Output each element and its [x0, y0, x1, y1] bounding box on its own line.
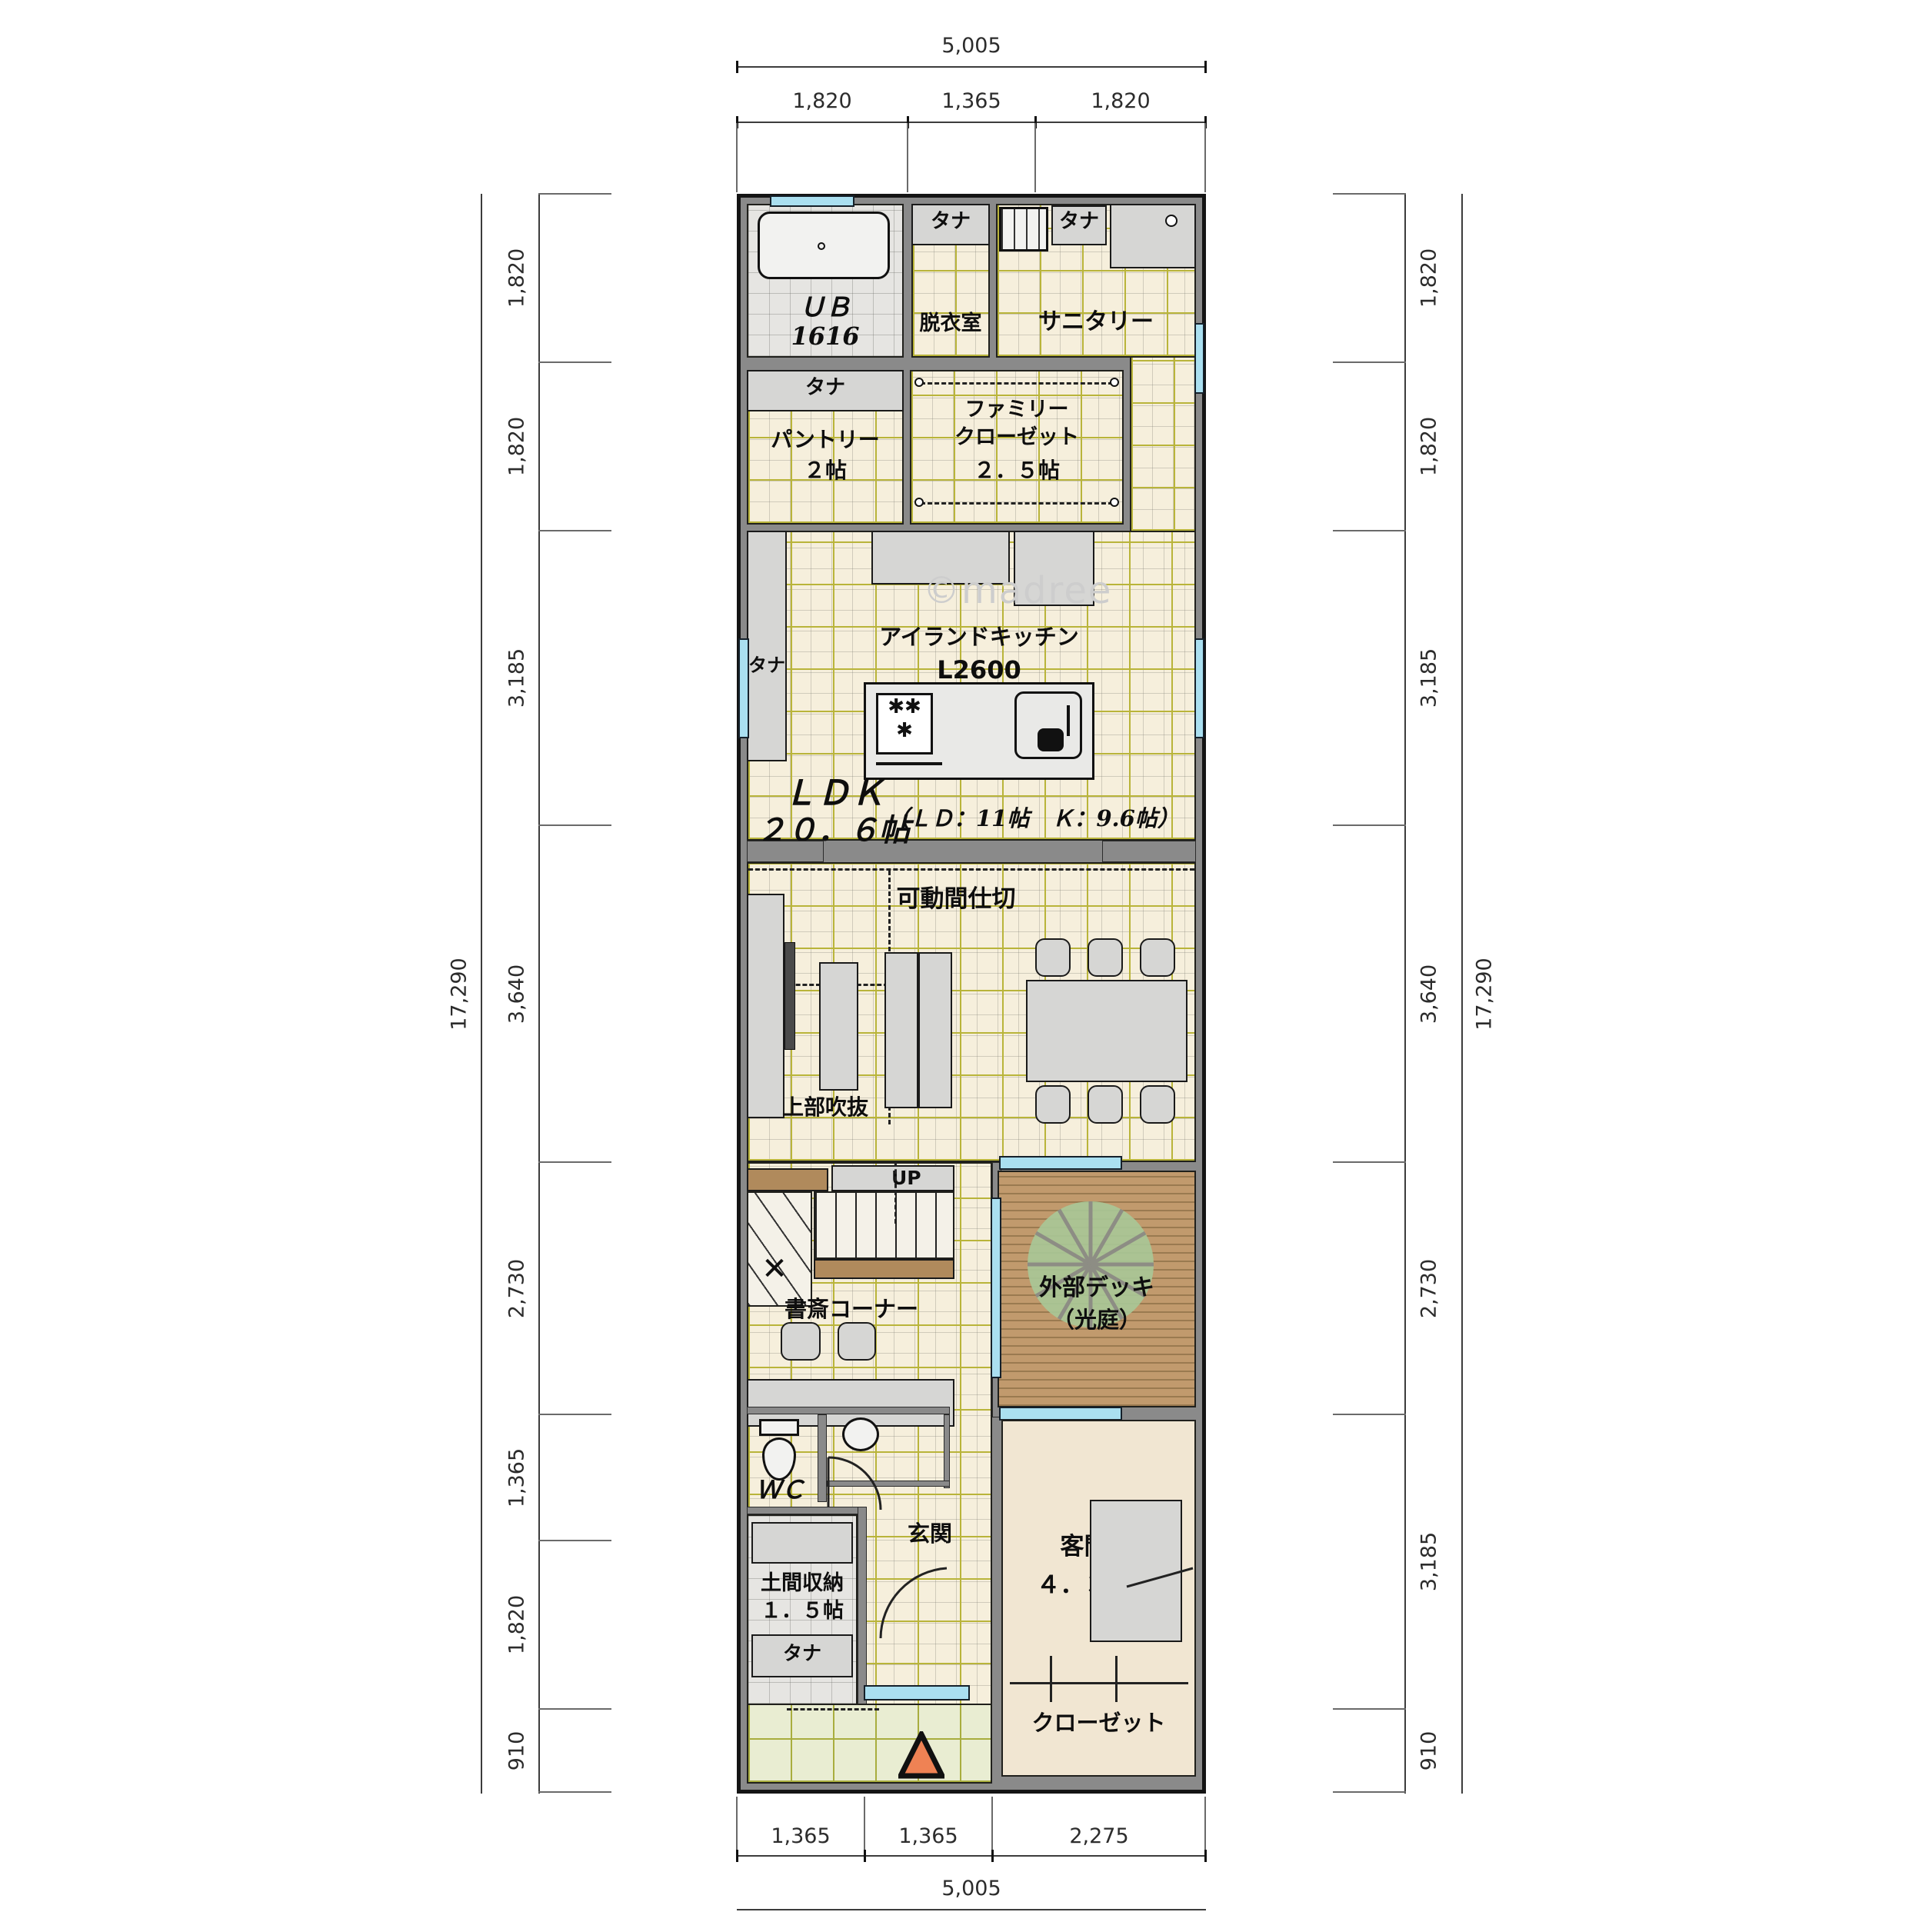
ext-line	[1333, 1161, 1406, 1163]
dim-line	[737, 1855, 1206, 1857]
floor-plan-sheet: 5,005 1,820 1,365 1,820 17,290 1,820 1,8…	[0, 0, 1932, 1932]
dim-right-overall: 17,290	[1473, 948, 1497, 1041]
sanitary-window	[1194, 323, 1204, 394]
study-chair	[781, 1322, 821, 1361]
dim-top-seg-0: 1,820	[737, 89, 908, 113]
tick	[1204, 1850, 1207, 1862]
dining-chair	[1088, 1085, 1123, 1124]
dim-left-seg-6: 1,820	[505, 1579, 529, 1671]
stair-treads	[814, 1191, 954, 1259]
ext-line	[1333, 1414, 1406, 1415]
sink-tap	[1067, 705, 1070, 736]
stair-landing	[814, 1259, 954, 1279]
dim-left-seg-7: 910	[505, 1705, 529, 1797]
porch-floor	[747, 1704, 992, 1784]
stair-direction-line	[894, 1162, 897, 1224]
stair-winder	[747, 1191, 812, 1307]
tick	[1204, 61, 1207, 73]
entrance-sliding-door	[864, 1685, 970, 1700]
wall-segment	[944, 1414, 950, 1488]
deck-sliding-door	[999, 1407, 1122, 1421]
stair-arrow: ✕	[751, 1253, 798, 1285]
dim-bottom-seg-2: 2,275	[992, 1824, 1206, 1848]
shelf-label: タナ	[1051, 212, 1107, 232]
kitchen-window-right	[1194, 638, 1204, 738]
room-ldk-detail: （ＬＤ：11帖 Ｋ：9.6帖）	[887, 807, 1194, 830]
room-dressing-label: 脱衣室	[905, 313, 996, 335]
door-arc	[879, 1567, 948, 1640]
ext-line	[907, 123, 908, 192]
ext-line	[538, 1414, 611, 1415]
room-closet-label: クローゼット	[1001, 1711, 1196, 1734]
ext-line	[1333, 1791, 1406, 1793]
wall-segment	[747, 1407, 950, 1414]
kitchen-window-left	[738, 638, 749, 738]
ext-line	[538, 824, 611, 826]
ext-line	[538, 1791, 611, 1793]
rod-end	[914, 378, 924, 387]
study-chair	[838, 1322, 876, 1361]
floor-plan: ＵＢ 1616 タナ 脱衣室 タナ サニタリー タナ パントリー ２帖 ファミリ…	[737, 194, 1206, 1794]
stove-front-line	[876, 762, 942, 765]
room-sanitary-label: サニタリー	[996, 310, 1196, 335]
deck-sliding-door	[999, 1156, 1122, 1170]
wall-segment	[1102, 841, 1196, 862]
sink-basin	[1038, 728, 1064, 751]
bath-window	[770, 195, 854, 207]
tv	[784, 942, 795, 1050]
doma-shelf	[751, 1522, 853, 1564]
ext-line	[538, 193, 611, 195]
room-pantry-label: パントリー	[747, 428, 904, 451]
washbasin	[842, 1417, 879, 1451]
sofa	[884, 952, 918, 1108]
stair-shelf	[747, 1168, 828, 1191]
dim-right-seg-3: 3,640	[1417, 948, 1441, 1041]
closet-rod	[921, 382, 1113, 385]
movable-partition-label: 可動間仕切	[818, 887, 1094, 912]
dim-left-seg-2: 3,185	[505, 632, 529, 724]
stair-up-label: UP	[891, 1168, 945, 1188]
dim-left-overall: 17,290	[448, 948, 471, 1041]
dim-top-seg-2: 1,820	[1035, 89, 1206, 113]
room-doma-size: １．５帖	[741, 1601, 864, 1622]
wall-segment	[747, 841, 824, 862]
dim-right-seg-0: 1,820	[1417, 232, 1441, 325]
dim-left-seg-5: 1,365	[505, 1432, 529, 1524]
dim-line	[481, 194, 482, 1794]
room-kitchen-label: アイランドキッチン	[856, 625, 1102, 648]
closet-rod	[1010, 1682, 1188, 1684]
dining-chair	[1035, 1085, 1071, 1124]
shelf-label: タナ	[742, 656, 791, 675]
ext-line	[1333, 1708, 1406, 1710]
shelf-label: タナ	[911, 212, 990, 232]
ext-line	[538, 530, 611, 531]
room-family-closet-line2: クローゼット	[910, 427, 1124, 448]
movable-partition-line	[748, 868, 1194, 871]
door-arc	[827, 1456, 882, 1511]
dim-left-seg-1: 1,820	[505, 401, 529, 493]
room-family-closet-line1: ファミリー	[910, 399, 1124, 421]
dim-right-seg-5: 3,185	[1417, 1516, 1441, 1608]
deck-label: 外部デッキ	[998, 1276, 1196, 1301]
dim-bottom-overall: 5,005	[737, 1877, 1206, 1900]
rod-tick	[1050, 1656, 1052, 1702]
leader-line	[1125, 1565, 1194, 1588]
dining-table	[1026, 980, 1188, 1082]
porch-step-line	[787, 1708, 879, 1710]
rod-tick	[1115, 1656, 1118, 1702]
room-pantry-size: ２帖	[747, 459, 904, 481]
dim-right-seg-4: 2,730	[1417, 1243, 1441, 1335]
rod-end	[1110, 378, 1119, 387]
dim-right-seg-6: 910	[1417, 1705, 1441, 1797]
dim-line	[1404, 194, 1406, 1794]
dim-top-overall: 5,005	[737, 34, 1206, 58]
dim-left-seg-3: 3,640	[505, 948, 529, 1041]
sofa	[918, 952, 952, 1108]
dim-top-seg-1: 1,365	[908, 89, 1035, 113]
kitchen-side-shelf	[747, 531, 787, 761]
closet-rod	[921, 502, 1113, 505]
ext-line	[1333, 530, 1406, 531]
deck-sub-label: （光庭）	[998, 1308, 1196, 1331]
ext-line	[1034, 123, 1036, 192]
shelf-label: タナ	[751, 1644, 853, 1664]
watermark: ©madree	[923, 569, 1112, 612]
tick	[736, 1850, 738, 1862]
dim-line	[1461, 194, 1463, 1794]
dining-chair	[1140, 1085, 1175, 1124]
room-kitchen-size: L2600	[856, 658, 1102, 684]
dim-right-seg-2: 3,185	[1417, 632, 1441, 724]
ext-line	[538, 361, 611, 363]
bathtub-drain	[818, 242, 825, 250]
ext-line	[1333, 193, 1406, 195]
dim-bottom-seg-1: 1,365	[864, 1824, 992, 1848]
ext-line	[538, 1161, 611, 1163]
dim-line	[737, 122, 1206, 123]
void-above-label: 上部吹抜	[756, 1096, 894, 1118]
room-entrance-label: 玄関	[867, 1522, 993, 1545]
tick	[864, 1850, 866, 1862]
dim-line	[737, 1909, 1206, 1910]
dining-chair	[1035, 938, 1071, 977]
room-family-closet-size: ２．５帖	[910, 459, 1124, 481]
room-bath-label: ＵＢ	[747, 295, 904, 322]
room-doma-label: 土間収納	[741, 1573, 864, 1594]
tv-board	[747, 894, 784, 1118]
dim-line	[538, 194, 540, 1794]
ext-line	[538, 1708, 611, 1710]
dim-right-seg-1: 1,820	[1417, 401, 1441, 493]
entrance-marker	[898, 1731, 944, 1779]
ext-line	[538, 1540, 611, 1541]
wall-segment	[747, 1507, 867, 1514]
ext-line	[1204, 123, 1206, 192]
stove: ✱✱✱	[876, 693, 933, 754]
sofa-side-table	[819, 962, 858, 1091]
toilet-tank	[759, 1419, 799, 1436]
ext-line	[1333, 824, 1406, 826]
study-corner-label: 書斎コーナー	[747, 1297, 956, 1321]
ext-line	[1333, 361, 1406, 363]
room-ldk-label: ＬＤＫ	[783, 776, 898, 811]
dining-chair	[1088, 938, 1123, 977]
ext-line	[736, 123, 738, 192]
washing-machine	[999, 207, 1048, 251]
corridor-floor	[1130, 356, 1196, 532]
dim-line	[737, 66, 1206, 68]
tick	[991, 1850, 994, 1862]
dim-left-seg-4: 2,730	[505, 1243, 529, 1335]
dim-bottom-seg-0: 1,365	[737, 1824, 864, 1848]
deck-window	[991, 1198, 1001, 1378]
dining-chair	[1140, 938, 1175, 977]
dim-left-seg-0: 1,820	[505, 232, 529, 325]
room-wc-label: ＷＣ	[741, 1477, 821, 1504]
sanitary-counter	[1110, 204, 1196, 268]
room-bath-size: 1616	[747, 324, 904, 350]
rod-end	[914, 498, 924, 507]
rod-end	[1110, 498, 1119, 507]
tick	[736, 61, 738, 73]
shelf-label: タナ	[747, 378, 904, 398]
sanitary-faucet	[1165, 215, 1178, 227]
